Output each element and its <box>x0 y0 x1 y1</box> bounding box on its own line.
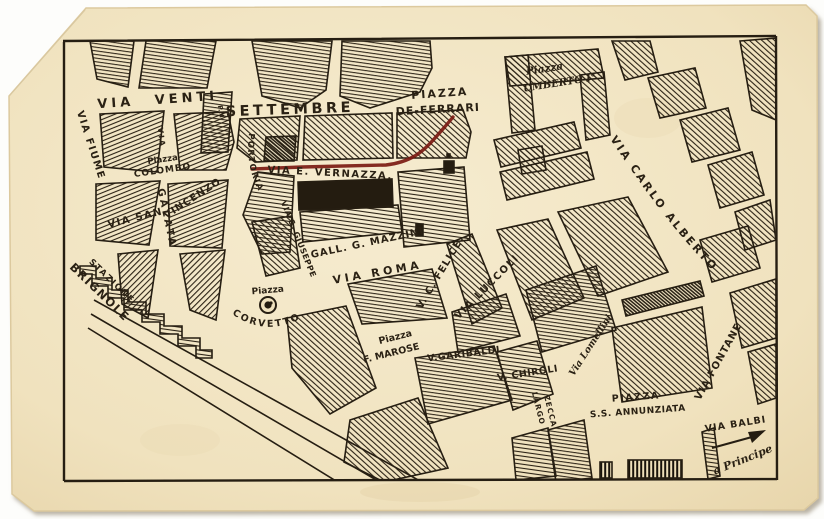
postcard-map-screenshot: { "postcard": { "colors": { "page_backgr… <box>0 0 824 519</box>
black-building <box>298 179 393 210</box>
genoa-street-map: VIA VENTI SETTEMBRE VIA FIUME Piazza COL… <box>0 0 824 519</box>
colonnade-building <box>628 460 682 478</box>
small-black-building <box>444 161 454 173</box>
paper-stain <box>360 482 480 502</box>
paper-stain <box>140 424 220 456</box>
monument-icon <box>260 297 276 313</box>
